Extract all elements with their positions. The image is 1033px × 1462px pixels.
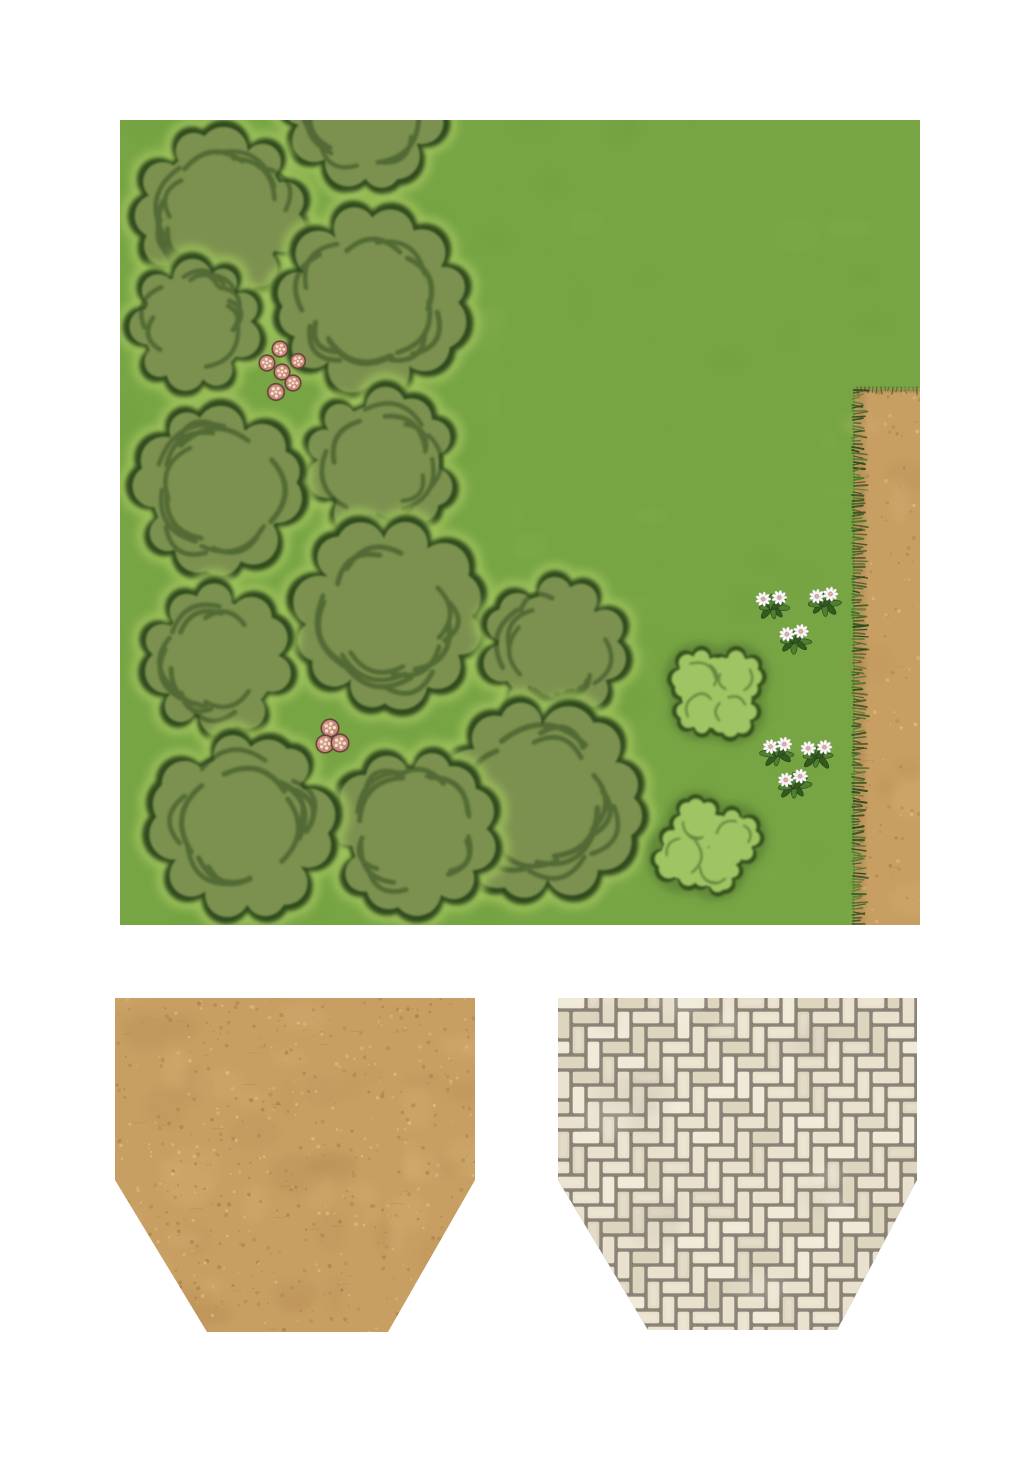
asset-sheet <box>0 0 1033 1462</box>
paver-texture <box>556 995 919 1333</box>
paver-swatch-canvas <box>556 995 919 1333</box>
texture-swatch-dirt <box>115 995 477 1335</box>
tree-canopy <box>279 508 495 723</box>
map-tile-grass-forest-path <box>120 120 920 925</box>
dirt-swatch-canvas <box>115 995 477 1335</box>
map-tile-canvas <box>120 120 920 925</box>
tree-canopy <box>135 721 349 925</box>
dirt-texture <box>115 995 477 1335</box>
bush-cluster <box>664 643 770 745</box>
texture-swatch-pavers <box>556 995 919 1333</box>
tree-canopy <box>317 740 509 925</box>
